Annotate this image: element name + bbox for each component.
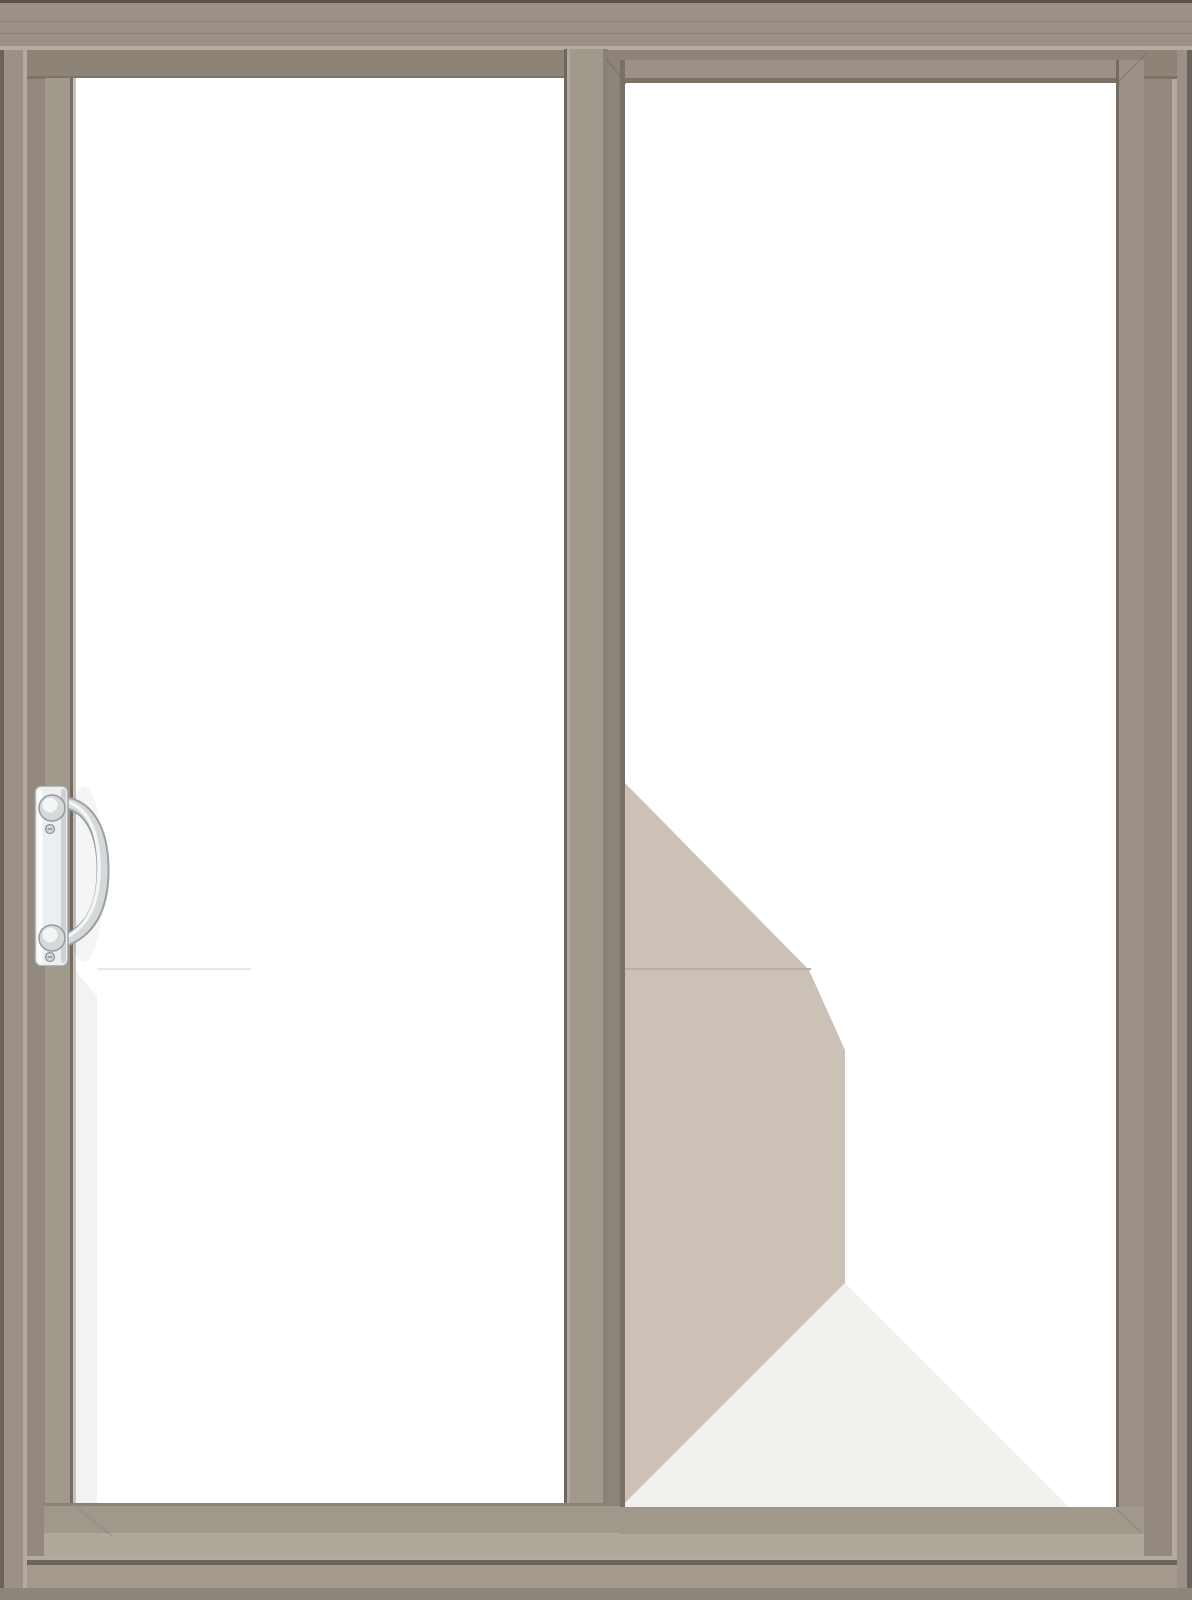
- right-jamb-highlight: [1172, 50, 1177, 1556]
- right-jamb: [1144, 50, 1172, 1556]
- handle-bottom-knuckle-highlight: [43, 928, 58, 943]
- meeting-stile-right-face: [603, 49, 608, 1556]
- gliding-panel-glass: [76, 78, 564, 1503]
- patio-door-image: [0, 0, 1192, 1600]
- fixed-panel-right-stile: [1116, 60, 1144, 1556]
- gliding-panel-bottom-bevel: [44, 1533, 620, 1556]
- fixed-panel-glass: [625, 83, 1116, 1507]
- head-seam-line: [0, 21, 1192, 22]
- right-glass-reflection: [625, 83, 1116, 1507]
- fixed-panel-bottom-bevel: [608, 1534, 1144, 1556]
- handle-top-knuckle-highlight: [43, 798, 58, 813]
- head-frame: [0, 0, 1192, 50]
- frame-right-edge: [1187, 0, 1192, 1588]
- frame-left-edge: [0, 0, 4, 1588]
- door-pull-handle: [28, 778, 112, 978]
- fixed-panel-right-stile-edge: [1116, 60, 1119, 1556]
- left-glass-reflection: [76, 78, 564, 1503]
- head-seam-line: [0, 33, 1192, 34]
- gliding-panel-bottom-rail: [44, 1503, 620, 1533]
- gliding-panel-bottom-rail-edge: [44, 1503, 620, 1506]
- head-top-edge: [0, 0, 1192, 3]
- sill-face: [27, 1565, 1177, 1588]
- sill-base: [0, 1588, 1192, 1600]
- meeting-stile-highlight: [567, 49, 570, 1556]
- fixed-panel-bottom-rail: [608, 1507, 1144, 1534]
